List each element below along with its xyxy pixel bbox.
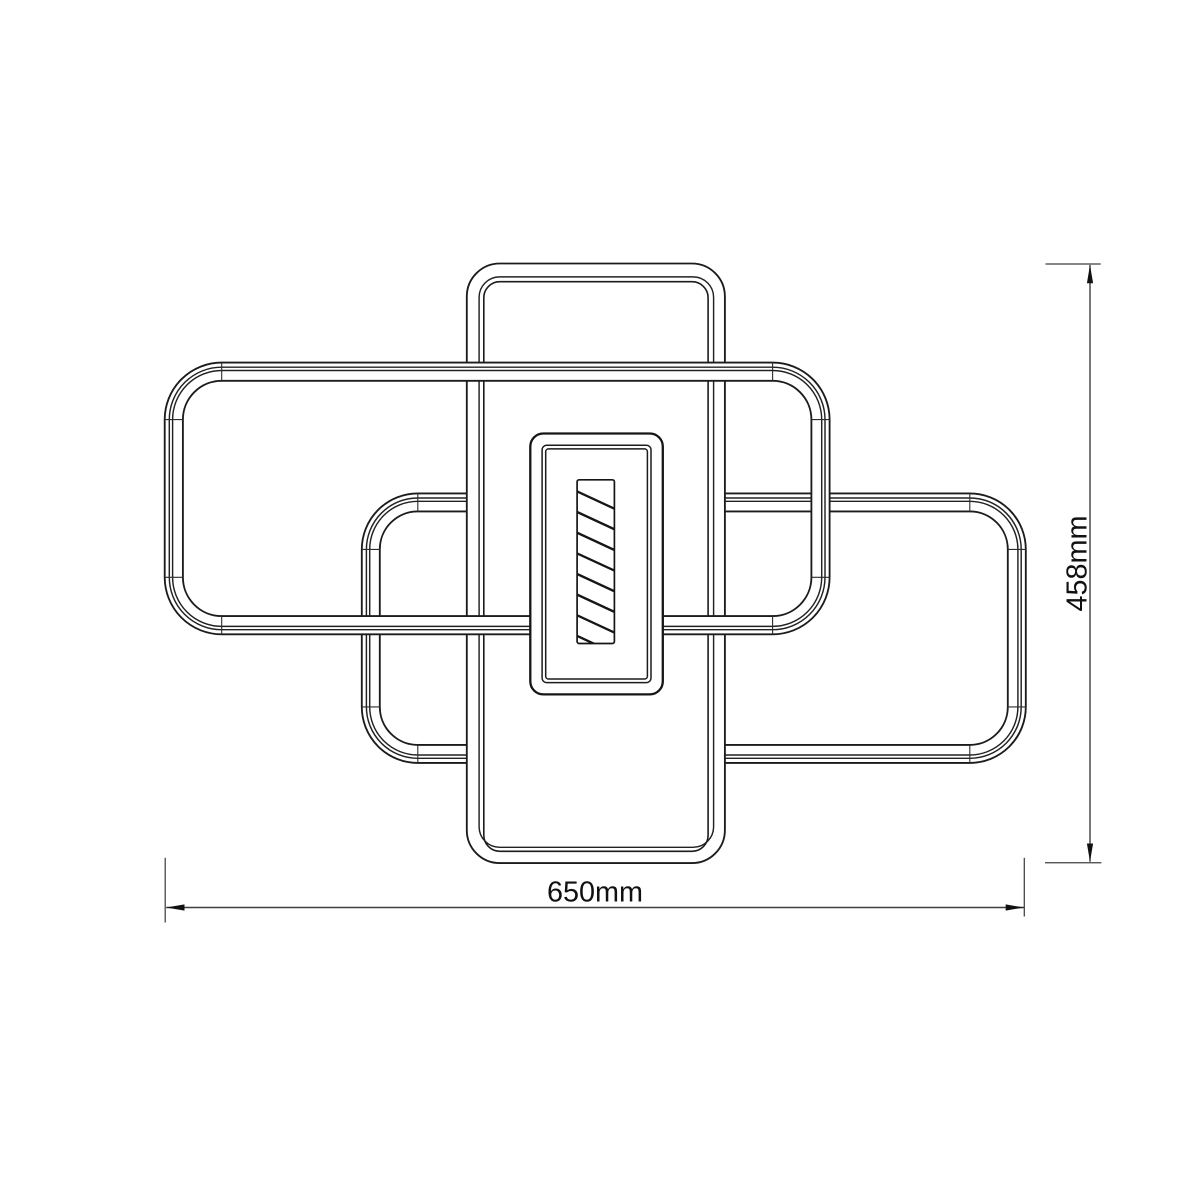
svg-text:458mm: 458mm (1061, 515, 1093, 611)
svg-text:650mm: 650mm (547, 877, 643, 909)
